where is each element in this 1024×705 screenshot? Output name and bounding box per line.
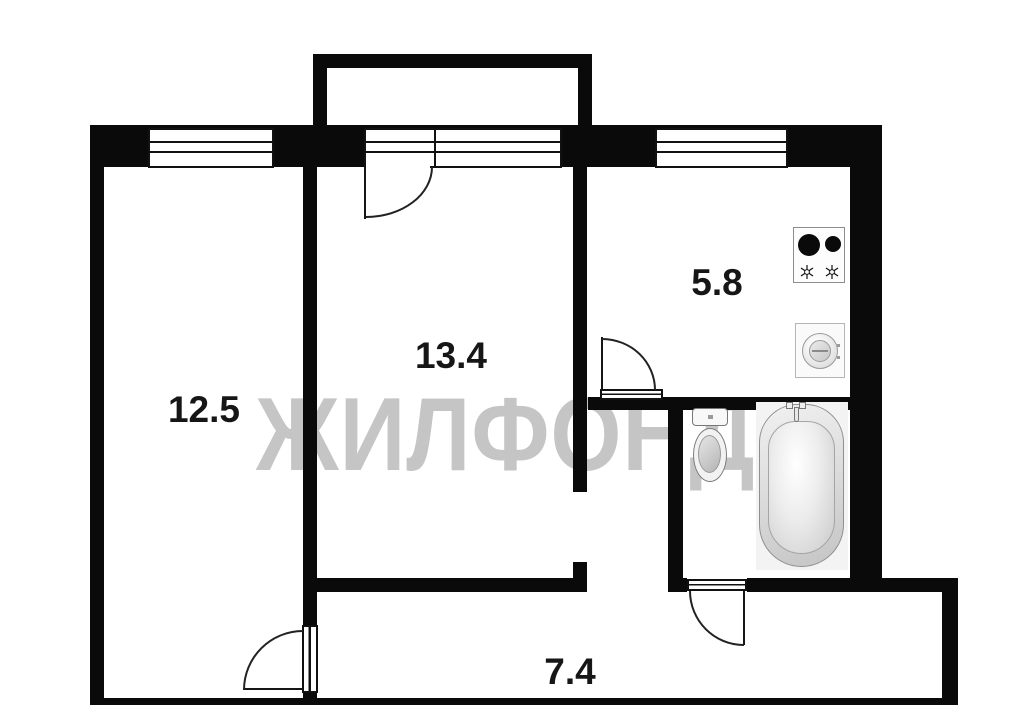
window-room-left [148,128,274,168]
kitchen-door [600,389,663,400]
room-area-label-kitchen: 5.8 [657,263,777,303]
stove-icon [793,227,845,283]
room-left-door-arc [243,630,303,690]
stove-flame-icon [799,264,815,280]
wall-hallway-right [942,592,958,705]
room-left-door [302,625,318,693]
bathroom-door [687,579,747,591]
balcony-door-arc [366,167,433,218]
balcony-door-divider [434,130,436,166]
wall-hallway-top-right [850,578,958,592]
window-kitchen [655,128,788,168]
wall-bathroom-bottom-a [668,578,687,592]
bathtub-faucet-knob [786,402,793,409]
bathtub-faucet-spout [794,407,799,422]
wall-right-exterior [850,125,882,592]
stove-burner-large [798,234,820,256]
stove-flame-icon [824,264,840,280]
bathroom-door-arc [689,591,744,646]
toilet-icon [692,408,728,426]
wall-balcony-top [313,54,592,68]
floor-plan: ЖИЛФОНД [0,0,1024,705]
room-area-label-living-center: 13.4 [391,336,511,376]
bathtub-faucet-knob [799,402,806,409]
wall-room2-bottom [317,578,587,592]
bathtub-basin [768,421,835,554]
room-area-label-hallway: 7.4 [510,652,630,692]
stove-burner-small [825,236,841,252]
room-area-label-living-left: 12.5 [144,390,264,430]
toilet-bowl-icon [693,428,727,482]
wall-bathroom-left [668,400,683,592]
wall-left-exterior [90,125,104,705]
wall-room2-right [573,167,587,492]
wall-balcony-right [578,54,592,125]
wall-mid-vertical [303,167,317,625]
wall-bottom-exterior [90,698,958,705]
kitchen-door-arc [602,338,656,390]
washing-machine-icon [795,323,845,378]
